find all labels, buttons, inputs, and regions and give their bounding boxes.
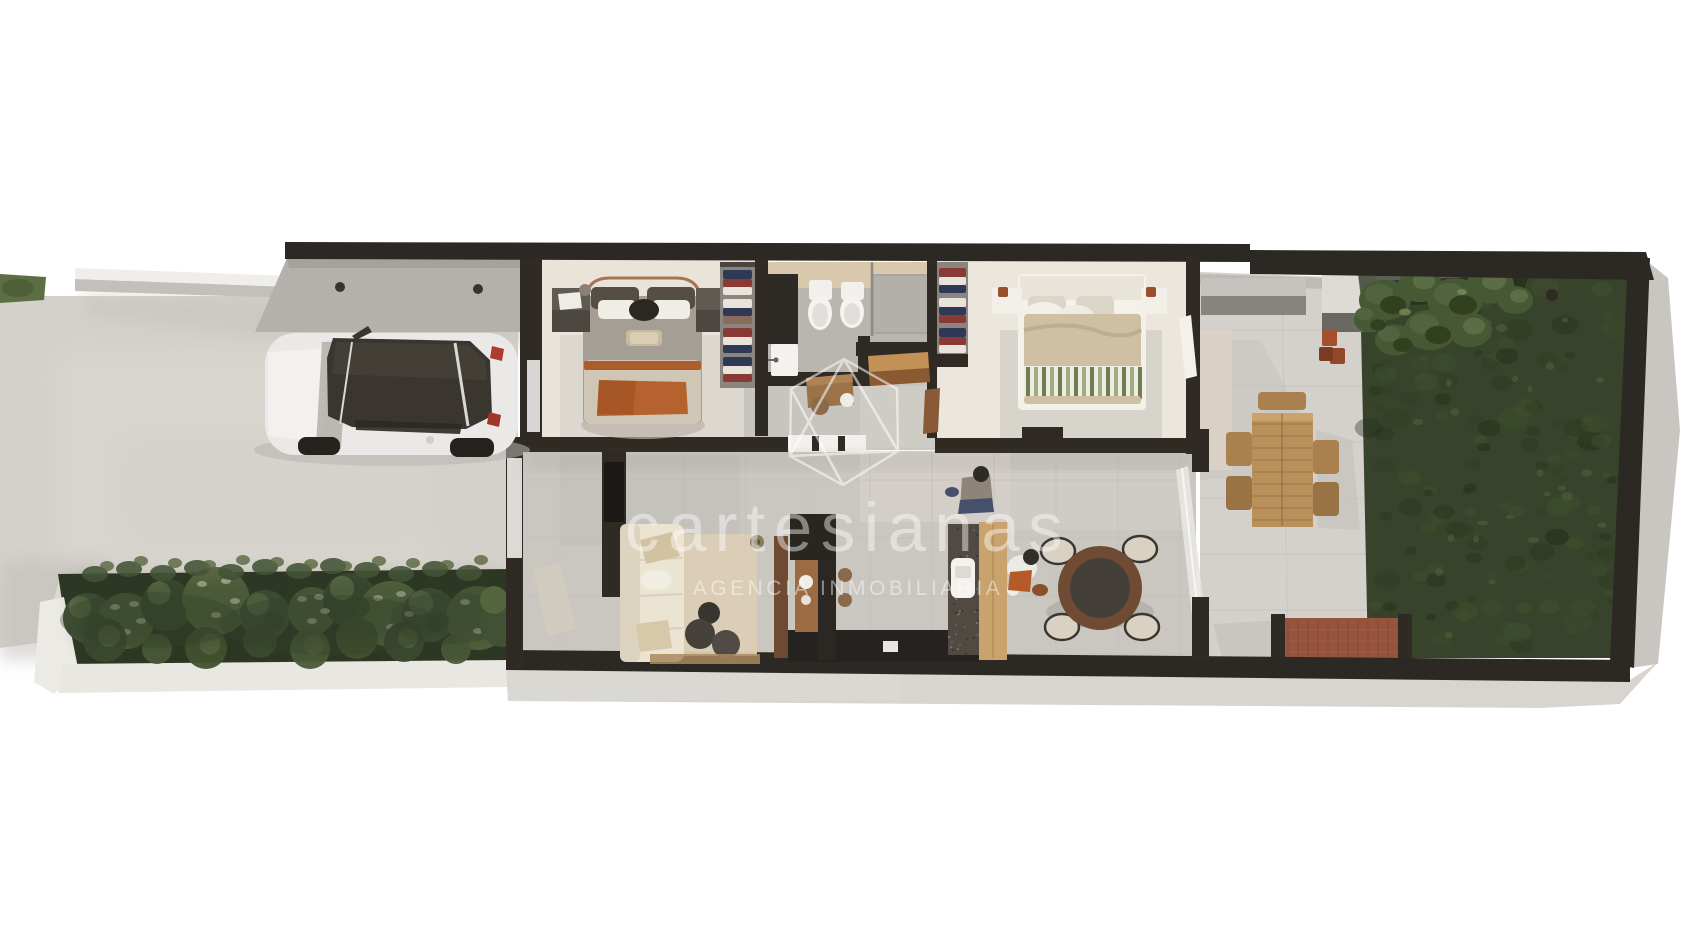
svg-text:AGENCIA INMOBILIARIA: AGENCIA INMOBILIARIA	[693, 577, 1003, 600]
svg-text:cartesianas: cartesianas	[625, 489, 1071, 566]
